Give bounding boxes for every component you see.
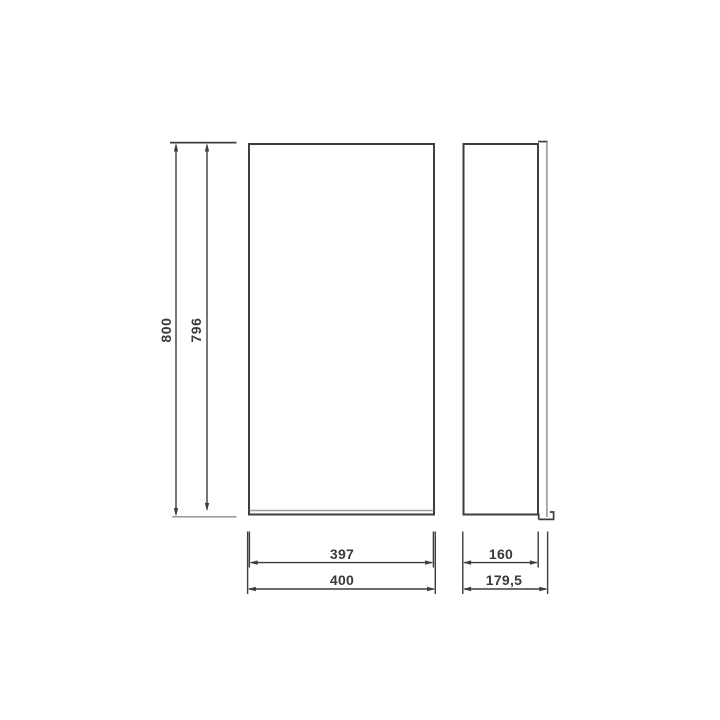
dim-label-height-outer: 800 — [158, 317, 174, 342]
dim-label-width-inner: 397 — [330, 546, 354, 562]
dim-800 — [174, 143, 178, 516]
dim-796-arrow-up-icon — [205, 143, 209, 151]
dim-label-depth-body: 160 — [489, 546, 513, 562]
dim-179-5-arrow-right-icon — [539, 587, 547, 591]
side-view — [464, 142, 554, 520]
dim-796 — [205, 143, 209, 511]
dim-160-arrow-right-icon — [530, 560, 538, 564]
dim-400-arrow-right-icon — [427, 587, 435, 591]
dim-800-arrow-down-icon — [174, 508, 178, 516]
dim-label-height-inner: 796 — [188, 317, 204, 342]
dim-800-arrow-up-icon — [174, 143, 178, 151]
front-view — [249, 144, 434, 515]
side-view-body-outline — [464, 144, 539, 515]
dim-400-arrow-left-icon — [248, 587, 256, 591]
side-view-door-bottom-hook — [539, 512, 554, 519]
dim-label-width-outer: 400 — [330, 572, 354, 588]
dim-160-arrow-left-icon — [463, 560, 471, 564]
technical-drawing-canvas: 800 796 397 400 160 179,5 — [0, 0, 720, 720]
front-view-outline — [249, 144, 434, 515]
dim-397-arrow-right-icon — [425, 560, 433, 564]
dim-label-depth-total: 179,5 — [486, 572, 523, 588]
dim-796-arrow-down-icon — [205, 503, 209, 511]
dim-179-5-arrow-left-icon — [463, 587, 471, 591]
cabinet-dimension-drawing — [0, 0, 720, 720]
dim-397-arrow-left-icon — [249, 560, 257, 564]
